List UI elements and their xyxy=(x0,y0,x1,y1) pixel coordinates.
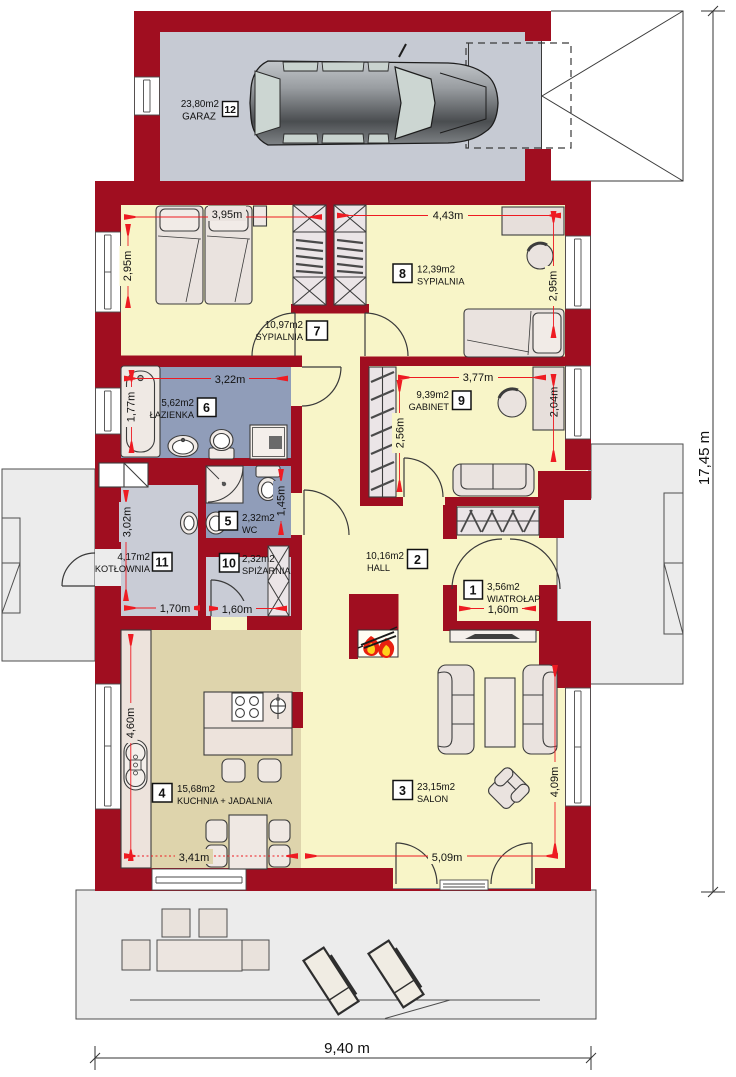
svg-text:4,17m2: 4,17m2 xyxy=(117,552,150,563)
svg-text:7: 7 xyxy=(314,325,321,339)
svg-text:15,68m2: 15,68m2 xyxy=(177,784,215,795)
svg-text:1,45m: 1,45m xyxy=(276,486,288,517)
svg-text:9,40 m: 9,40 m xyxy=(324,1040,370,1057)
svg-text:ŁAZIENKA: ŁAZIENKA xyxy=(150,410,195,420)
svg-text:1,60m: 1,60m xyxy=(222,604,253,616)
svg-text:GARAZ: GARAZ xyxy=(182,112,216,123)
svg-text:1,60m: 1,60m xyxy=(488,604,519,616)
svg-text:4,60m: 4,60m xyxy=(125,708,137,739)
svg-text:HALL: HALL xyxy=(367,563,390,573)
svg-text:SYPIALNIA: SYPIALNIA xyxy=(256,332,304,342)
svg-text:4,43m: 4,43m xyxy=(433,210,464,222)
svg-text:23,15m2: 23,15m2 xyxy=(417,782,455,793)
svg-text:17,45 m: 17,45 m xyxy=(696,431,713,485)
svg-text:3,95m: 3,95m xyxy=(212,209,243,221)
svg-text:KOTŁOWNIA: KOTŁOWNIA xyxy=(95,564,151,574)
svg-text:5,62m2: 5,62m2 xyxy=(161,398,194,409)
svg-text:3,41m: 3,41m xyxy=(179,852,210,864)
svg-text:KUCHNIA + JADALNIA: KUCHNIA + JADALNIA xyxy=(177,796,273,806)
svg-text:9,39m2: 9,39m2 xyxy=(416,390,449,401)
svg-text:8: 8 xyxy=(399,267,406,281)
svg-text:SPIŻARNIA: SPIŻARNIA xyxy=(242,566,291,576)
svg-text:3,02m: 3,02m xyxy=(122,507,134,538)
svg-text:1: 1 xyxy=(470,584,477,598)
svg-text:GABINET: GABINET xyxy=(409,402,450,412)
svg-text:5: 5 xyxy=(225,515,232,529)
svg-text:4,09m: 4,09m xyxy=(549,767,561,798)
svg-text:2,32m2: 2,32m2 xyxy=(242,554,275,565)
svg-text:4: 4 xyxy=(159,787,166,801)
svg-text:1,70m: 1,70m xyxy=(160,603,191,615)
svg-text:6: 6 xyxy=(203,401,210,415)
svg-text:WIATROŁAP: WIATROŁAP xyxy=(487,594,540,604)
svg-text:12,39m2: 12,39m2 xyxy=(417,265,455,276)
svg-text:2,95m: 2,95m xyxy=(122,251,134,282)
svg-text:10: 10 xyxy=(222,557,236,571)
svg-text:2,32m2: 2,32m2 xyxy=(242,513,275,524)
svg-text:2,04m: 2,04m xyxy=(549,387,561,418)
svg-text:3,22m: 3,22m xyxy=(215,374,246,386)
svg-text:3,77m: 3,77m xyxy=(463,372,494,384)
svg-text:2,95m: 2,95m xyxy=(548,271,560,302)
svg-text:12: 12 xyxy=(224,104,236,116)
svg-text:WC: WC xyxy=(242,525,258,535)
svg-text:10,16m2: 10,16m2 xyxy=(366,551,404,562)
svg-text:5,09m: 5,09m xyxy=(432,852,463,864)
svg-text:2: 2 xyxy=(414,553,421,567)
svg-text:SALON: SALON xyxy=(417,794,448,804)
svg-text:3,56m2: 3,56m2 xyxy=(487,582,520,593)
svg-text:2,56m: 2,56m xyxy=(395,418,407,449)
svg-text:SYPIALNIA: SYPIALNIA xyxy=(417,277,465,287)
svg-text:3: 3 xyxy=(399,784,406,798)
svg-text:11: 11 xyxy=(155,556,168,570)
svg-text:9: 9 xyxy=(458,394,465,408)
svg-text:23,80m2: 23,80m2 xyxy=(181,99,219,110)
svg-text:1,77m: 1,77m xyxy=(126,392,138,423)
svg-text:10,97m2: 10,97m2 xyxy=(265,320,303,331)
